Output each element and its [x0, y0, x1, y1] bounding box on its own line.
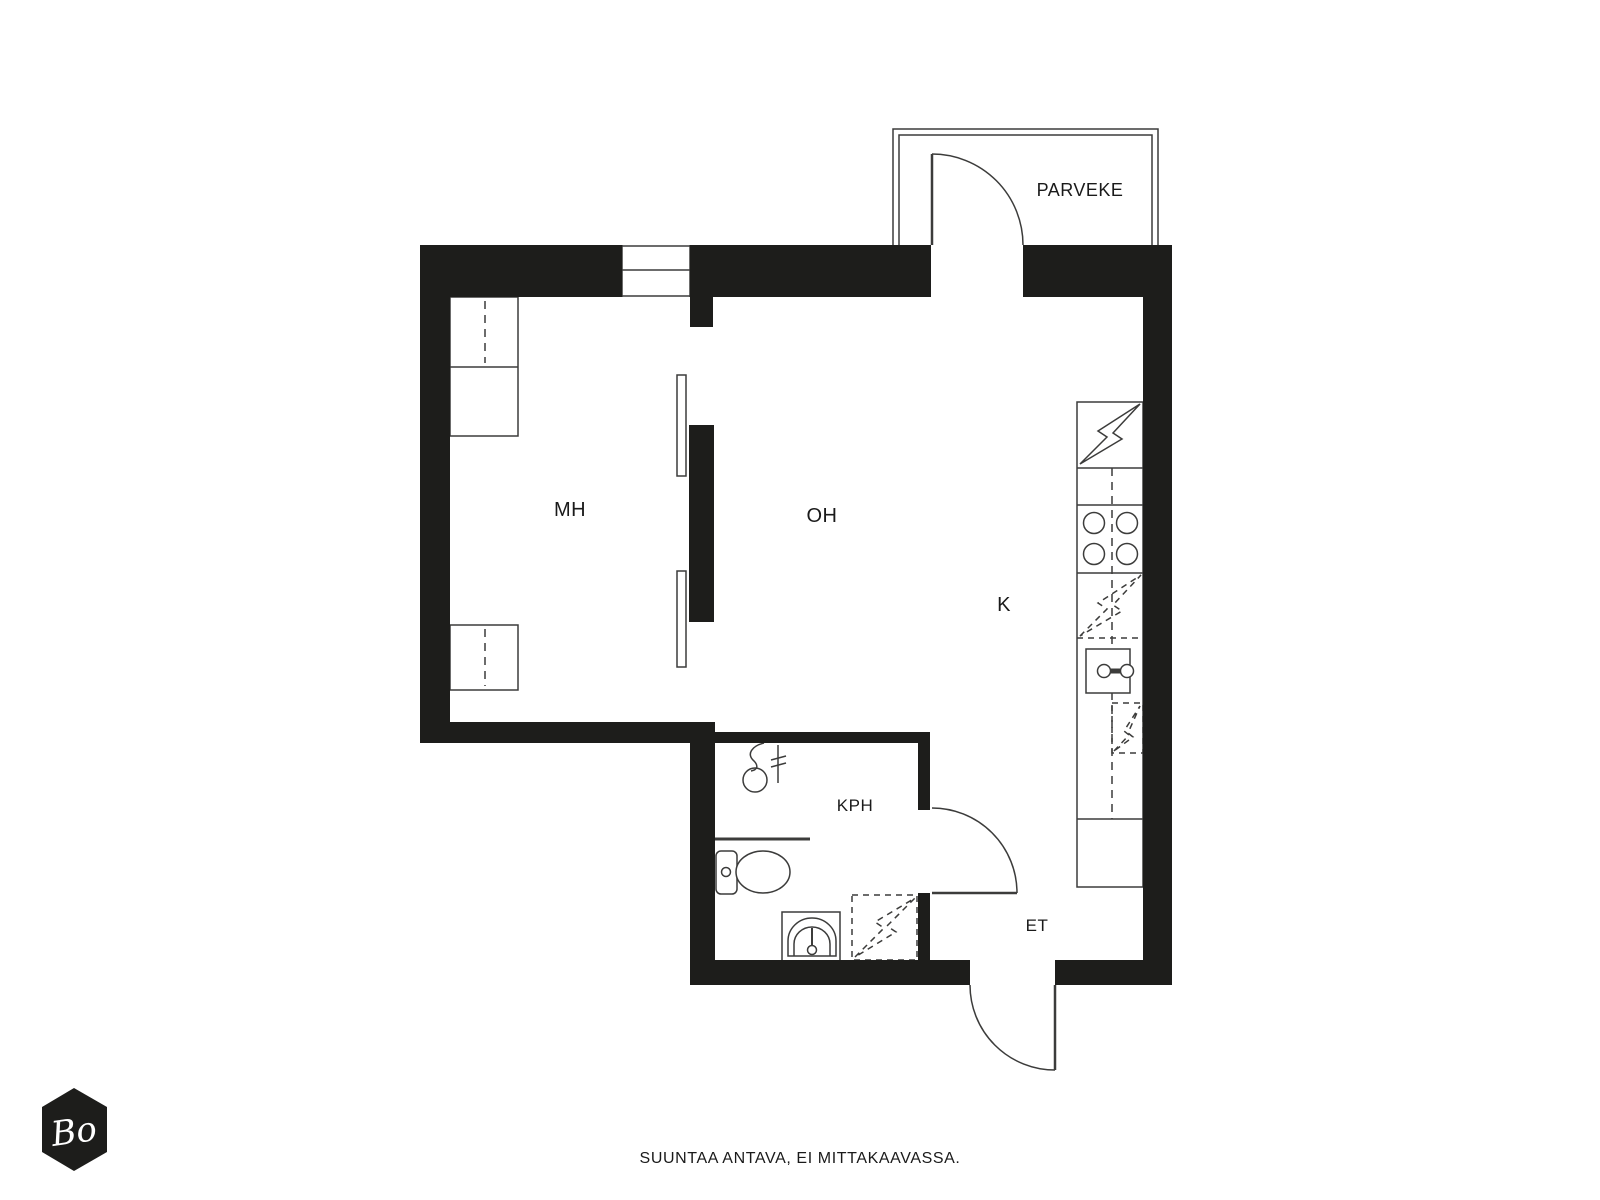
window-icon: [622, 245, 690, 297]
toilet-icon: [716, 851, 790, 894]
walls: [420, 245, 1172, 985]
wall-central-partition: [689, 425, 714, 622]
wall-right: [1143, 245, 1172, 985]
bathroom-door-icon: [932, 808, 1017, 893]
wardrobe-lower-icon: [450, 625, 518, 690]
wall-kph-top: [715, 732, 930, 743]
wall-lower-left: [690, 743, 715, 985]
logo-text: Bo: [48, 1109, 100, 1155]
washbasin-icon: [782, 912, 840, 962]
wall-kph-right-lower: [918, 893, 930, 960]
kitchen-counter: [1077, 402, 1143, 887]
footer-disclaimer: SUUNTAA ANTAVA, EI MITTAKAAVASSA.: [640, 1150, 961, 1167]
logo: Bo: [42, 1088, 107, 1171]
room-label-mh: MH: [554, 499, 586, 521]
sliding-door-lower-icon: [677, 571, 686, 667]
floor-plan-page: MH OH K KPH ET PARVEKE Bo SUUNTAA ANTAVA…: [0, 0, 1600, 1200]
wall-kph-right-upper: [918, 743, 930, 810]
sliding-door-upper-icon: [677, 375, 686, 476]
wall-top-left: [420, 245, 622, 297]
wall-mh-bottom: [420, 722, 715, 743]
floor-plan-drawing: MH OH K KPH ET PARVEKE Bo SUUNTAA ANTAVA…: [0, 0, 1600, 1200]
washer-reservation-icon: [852, 895, 917, 960]
shower-connection-icon: [743, 743, 786, 792]
room-label-parveke: PARVEKE: [1037, 180, 1124, 200]
wall-left: [420, 245, 450, 743]
sink-icon: [1086, 649, 1134, 693]
room-label-kph: KPH: [837, 796, 873, 815]
room-label-et: ET: [1026, 916, 1049, 935]
room-label-k: K: [997, 594, 1011, 616]
balcony-door-icon: [932, 154, 1023, 245]
wardrobe-upper-icon: [450, 297, 518, 436]
wall-bottom-left: [690, 960, 970, 985]
room-label-oh: OH: [807, 505, 838, 527]
wall-top-mid: [690, 245, 931, 297]
wall-oh-stub: [690, 297, 713, 327]
sliding-doors: [677, 375, 686, 667]
entry-door-icon: [970, 985, 1055, 1070]
